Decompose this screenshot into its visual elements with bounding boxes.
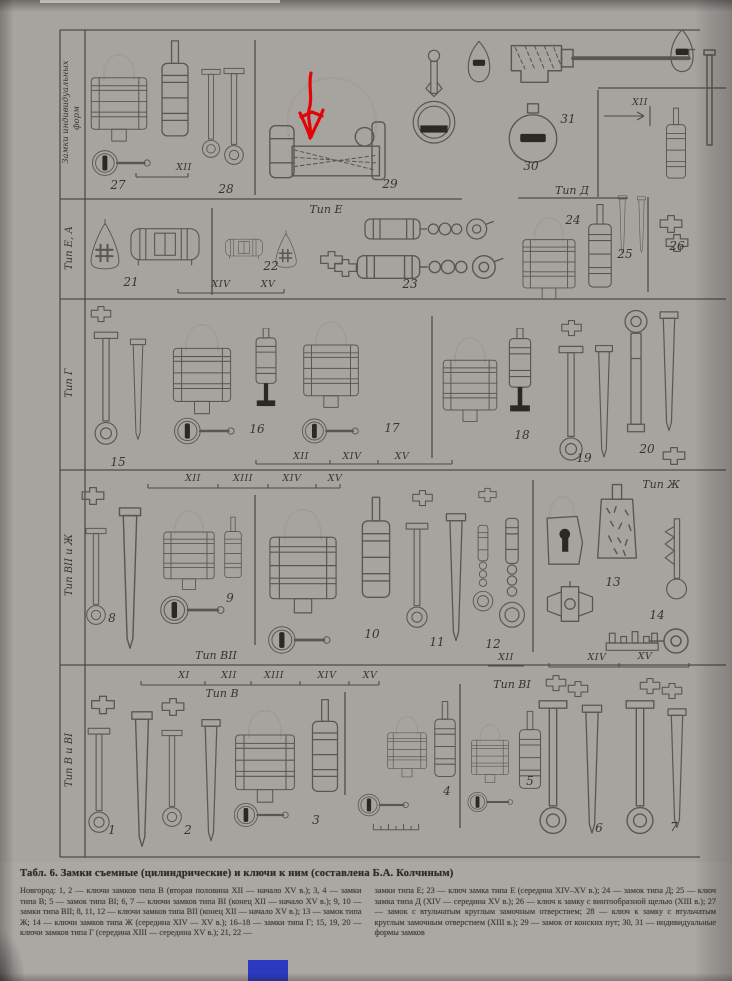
item-number: 3: [312, 813, 320, 827]
key-bit-cross-icon: [562, 321, 582, 336]
key-11b: [446, 514, 465, 641]
item-number: 24: [564, 213, 580, 227]
key-25a: [589, 205, 612, 288]
lock-3b: [313, 700, 338, 792]
item-number: 4: [442, 784, 451, 798]
type-label: Тип Ж: [642, 478, 680, 491]
item-number: 8: [108, 611, 116, 625]
lock-10: [270, 510, 336, 613]
lock-22b: [276, 231, 297, 267]
key-26-side: [666, 108, 685, 178]
lock-5a: [472, 725, 509, 783]
key-17: [302, 419, 358, 443]
key-4: [358, 794, 408, 816]
century-label: XIV: [211, 279, 232, 290]
lock-17: [304, 322, 359, 407]
key-7b: [668, 709, 686, 828]
century-label: XV: [637, 651, 653, 662]
century-label: XIV: [342, 451, 363, 462]
key-type-g: [256, 328, 276, 406]
century-label: XII: [175, 162, 192, 173]
key-1a: [88, 728, 110, 832]
row-type-v-v1: XI XII XIII XIV XV Тип В 1 2 3 4 Тип ВI: [88, 670, 686, 846]
caption-column-left: Новгород: 1, 2 — ключи замков типа В (вт…: [20, 886, 362, 939]
key-20a: [625, 311, 647, 432]
key-bit-cross-icon: [92, 696, 115, 713]
key-11a: [406, 523, 428, 627]
key-16: [175, 418, 235, 444]
type-label: Тип Д: [555, 184, 590, 197]
key-9: [161, 596, 224, 623]
ring-key-small: [650, 629, 688, 653]
type-label: Тип В: [205, 687, 238, 700]
lock-30: [509, 104, 556, 162]
item-number: 31: [560, 112, 575, 126]
century-label: XII: [497, 652, 514, 663]
key-18: [509, 328, 530, 411]
row-type-e-a-d: 21 22 XIV XV Тип Е 23 Тип Д 24 25 26: [91, 184, 688, 299]
key-bit-cross-icon: [479, 488, 496, 501]
lock-13: [547, 497, 582, 564]
key-28b: [224, 68, 244, 164]
lock-13-plate: [598, 485, 637, 559]
key-15a: [94, 332, 117, 444]
key-bit-cross-icon: [568, 682, 588, 697]
key-20b: [660, 312, 678, 431]
key-14: [665, 519, 686, 599]
lock-22a: [226, 239, 263, 259]
key-23a: [365, 219, 493, 239]
row-type-v2-zh: XII XIII XIV XV 8 9 10 11 12: [82, 473, 689, 667]
item-number: 5: [526, 774, 534, 788]
key-bit-cross-icon: [413, 491, 433, 506]
item-number: 30: [523, 159, 539, 173]
scan-edge-bottom: [0, 973, 732, 981]
key-6a: [539, 701, 567, 834]
item-number: 16: [249, 422, 265, 436]
item-number: 13: [605, 575, 621, 589]
key-2a: [162, 730, 182, 826]
lock-3a: [236, 711, 295, 803]
key-8a: [86, 528, 106, 624]
key-7a: [626, 701, 654, 834]
century-label: XII: [631, 97, 648, 108]
scale-ruler: [373, 824, 418, 829]
scan-edge-right: [694, 0, 732, 981]
row-individual-forms: 27 XII 28 29 30 31 XII: [91, 30, 715, 196]
item-number: 25: [616, 247, 632, 261]
lock-4a: [388, 717, 427, 777]
key-26-large: [511, 46, 694, 83]
lock-21b: [131, 229, 199, 265]
scan-highlight-top: [40, 0, 280, 3]
lock-4b: [435, 701, 455, 776]
century-label: XIV: [587, 652, 608, 663]
scanned-book-page: Замки индивидуальных форм Тип Е, А Тип Г…: [0, 0, 732, 981]
side-label-tip-e-a: Тип Е, А: [64, 226, 75, 270]
key-10c: [362, 497, 389, 597]
key-ring-29: [413, 50, 455, 143]
item-number: 14: [649, 608, 664, 622]
century-label: XV: [327, 473, 343, 484]
item-number: 20: [638, 442, 655, 456]
item-number: 6: [595, 821, 603, 835]
century-label: XII: [184, 473, 201, 484]
side-label-individual-1: Замки индивидуальных: [60, 60, 70, 164]
item-number: 15: [110, 455, 125, 469]
item-number: 7: [670, 820, 678, 834]
key-27: [92, 151, 150, 176]
item-number: 1: [108, 823, 116, 837]
century-label: XII: [220, 670, 237, 681]
key-1b: [132, 712, 152, 846]
key-15b: [130, 339, 145, 439]
key-5: [468, 792, 513, 811]
figure-caption: Табл. 6. Замки съемные (цилиндрические) …: [0, 862, 732, 981]
red-arrow-annotation: [300, 73, 323, 138]
key-bit-cross-icon: [162, 699, 184, 716]
key-19b: [596, 346, 613, 457]
item-number: 17: [384, 421, 400, 435]
lock-21a: [91, 219, 119, 268]
side-label-tip-v2-zh: Тип ВII и Ж: [64, 533, 75, 596]
key-bit-cross-icon: [660, 216, 682, 233]
century-label: XV: [394, 451, 410, 462]
lock-24: [523, 218, 575, 299]
horse-fetter-lock-29: [270, 78, 385, 179]
side-label-tip-g: Тип Г: [64, 368, 75, 398]
century-label: XII: [292, 451, 309, 462]
key-8b: [119, 508, 140, 648]
key-25b: [618, 196, 627, 254]
key-bit-cross-icon: [640, 679, 660, 694]
side-labels: Замки индивидуальных форм Тип Е, А Тип Г…: [60, 60, 81, 787]
item-number: 26: [668, 239, 685, 253]
table-caption-title: Табл. 6. Замки съемные (цилиндрические) …: [20, 868, 706, 879]
key-bit-cross-icon: [91, 307, 111, 322]
scan-edge-left: [0, 0, 14, 981]
item-number: 2: [183, 823, 192, 837]
item-number: 29: [381, 177, 398, 191]
century-label: XIII: [263, 670, 284, 681]
key-bit-cross-icon: [546, 676, 566, 691]
key-bit-cross-icon: [662, 684, 682, 699]
key-3: [234, 803, 288, 826]
century-label: XV: [260, 279, 276, 290]
item-number: 27: [109, 178, 126, 192]
row-type-g: 15 16 17 18 19 20 XII XIV XV: [91, 307, 685, 470]
key-6b: [582, 705, 601, 833]
key-10: [269, 627, 330, 653]
item-number: 12: [485, 637, 500, 651]
type-label: Тип Е: [309, 203, 342, 216]
key-12b: [500, 518, 525, 627]
type-label: Тип ВII: [195, 649, 237, 662]
lock-18: [443, 338, 497, 422]
century-label: XIII: [232, 473, 253, 484]
item-number: 18: [514, 428, 530, 442]
item-number: 22: [262, 259, 278, 273]
key-12a: [473, 525, 493, 611]
lock-31-view-b: [671, 30, 693, 72]
item-number: 11: [429, 635, 444, 649]
lock-table-figure: Замки индивидуальных форм Тип Е, А Тип Г…: [0, 0, 732, 862]
lock-16: [173, 325, 230, 414]
key-9c: [225, 517, 242, 578]
item-number: 10: [364, 627, 380, 641]
century-label: XV: [362, 670, 378, 681]
century-label: XI: [177, 670, 190, 681]
key-23b: [357, 256, 502, 279]
key-bit-cross-icon: [663, 448, 685, 465]
item-number: 21: [122, 275, 138, 289]
century-label: XIV: [282, 473, 303, 484]
lock-13-fitting: [547, 581, 592, 621]
item-number: 9: [226, 591, 234, 605]
side-label-tip-v-v1: Тип В и ВI: [64, 732, 75, 787]
lock-27-side-view: [162, 41, 188, 136]
key-bit-cross-icon: [335, 260, 357, 277]
lock-9: [164, 511, 214, 590]
key-28a: [202, 69, 220, 157]
item-number: 23: [401, 277, 418, 291]
item-number: 19: [576, 451, 592, 465]
key-2b: [202, 720, 220, 841]
type-label: Тип ВI: [493, 678, 531, 691]
item-number: 28: [217, 182, 234, 196]
key-bit-cross-icon: [321, 252, 343, 269]
key-25c: [637, 197, 645, 253]
lock-31-view-a: [468, 41, 489, 82]
century-label: XIV: [317, 670, 338, 681]
padlock-27: [91, 55, 146, 141]
side-label-individual-2: форм: [71, 106, 81, 130]
caption-column-right: замки типа Е; 23 — ключ замка типа Е (се…: [375, 886, 717, 939]
scan-corner-smudge: [0, 930, 26, 981]
key-19a: [559, 346, 583, 460]
